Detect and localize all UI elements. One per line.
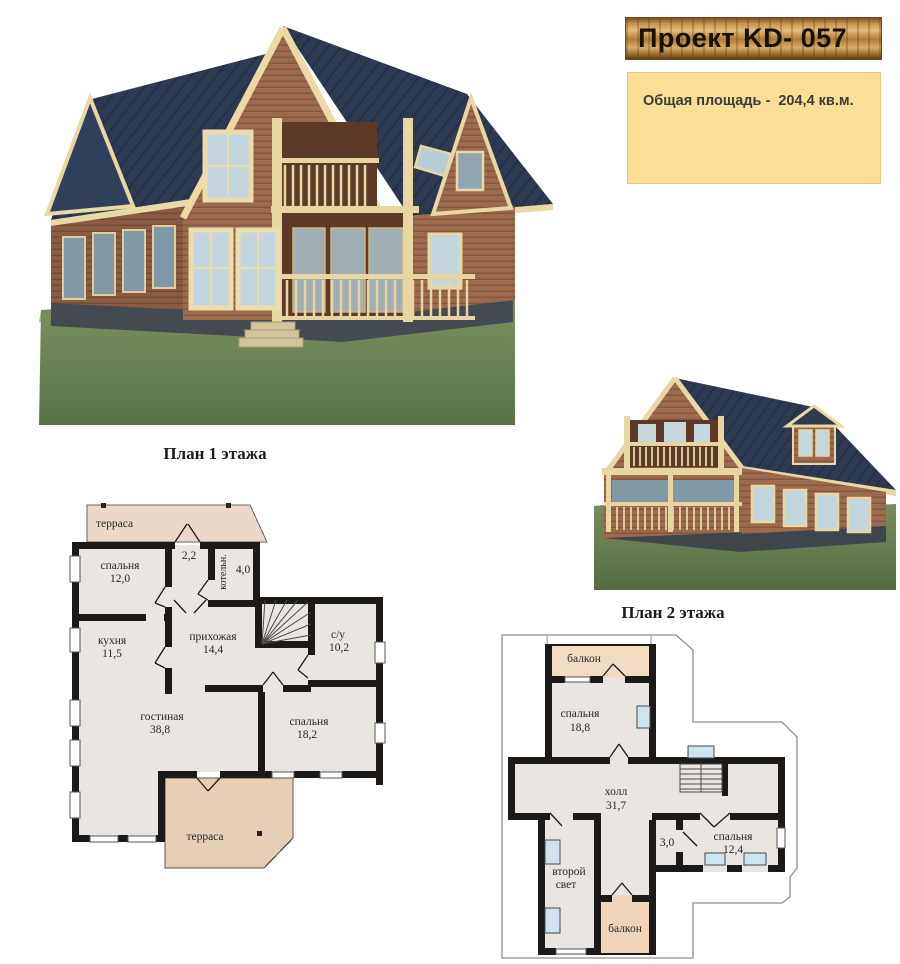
terrace-bottom: [165, 778, 293, 868]
label-wc-name: с/у: [331, 629, 345, 641]
project-title: Проект KD- 057: [626, 23, 847, 54]
project-title-banner: Проект KD- 057: [625, 17, 882, 60]
label-entry-area: 14,4: [203, 644, 223, 656]
label-closet-area: 3,0: [660, 837, 675, 849]
label-bedroom3-area: 18,8: [570, 722, 590, 734]
label-kitchen-area: 11,5: [102, 648, 122, 660]
house-render-front: [5, 4, 557, 426]
project-sheet: Проект KD- 057 Общая площадь - 204,4 кв.…: [0, 0, 900, 964]
balcony: [624, 416, 724, 468]
right-wing-window: [429, 234, 461, 288]
veranda-windows: [612, 480, 738, 504]
label-bedroom1-name: спальня: [101, 560, 141, 572]
label-entry-name: прихожая: [189, 631, 237, 643]
total-area-text: Общая площадь - 204,4 кв.м.: [628, 73, 880, 109]
label-bedroom1-area: 12,0: [110, 573, 130, 585]
label-void-line2: свет: [556, 879, 577, 891]
label-hall-name: холл: [605, 786, 628, 798]
label-void-line1: второй: [552, 866, 585, 878]
plan2-title: План 2 этажа: [563, 603, 783, 623]
label-kitchen-name: кухня: [98, 635, 127, 647]
right-gable-window: [457, 152, 483, 190]
label-hall-area: 31,7: [606, 800, 626, 812]
label-hallsmall-area: 2,2: [182, 550, 197, 562]
label-living-area: 38,8: [150, 724, 170, 736]
label-terrace-top: терраса: [96, 518, 133, 530]
porch-post-right: [403, 118, 413, 322]
label-bedroom4-area: 12,4: [723, 844, 743, 856]
house-render-back: [590, 360, 900, 592]
label-boiler-name: котельн.: [218, 554, 229, 589]
plan1-title: План 1 этажа: [105, 444, 325, 464]
floor-plan-2: балкон спальня 18,8 холл 31,7 3,0 спальн…: [495, 628, 805, 962]
label-living-name: гостиная: [140, 711, 184, 723]
label-balcony-bottom: балкон: [608, 923, 642, 935]
label-bedroom2-area: 18,2: [297, 729, 317, 741]
label-bedroom3-name: спальня: [561, 708, 601, 720]
label-boiler-area: 4,0: [236, 564, 251, 576]
label-balcony-top: балкон: [567, 653, 601, 665]
floor-plan-1: терраса спальня 12,0 2,2 котельн. 4,0 ку…: [55, 495, 395, 880]
total-area-box: Общая площадь - 204,4 кв.м.: [627, 72, 881, 184]
label-terrace-bottom: терраса: [186, 831, 223, 843]
label-bedroom2-name: спальня: [290, 716, 330, 728]
label-bedroom4-name: спальня: [714, 831, 754, 843]
label-wc-area: 10,2: [329, 642, 349, 654]
